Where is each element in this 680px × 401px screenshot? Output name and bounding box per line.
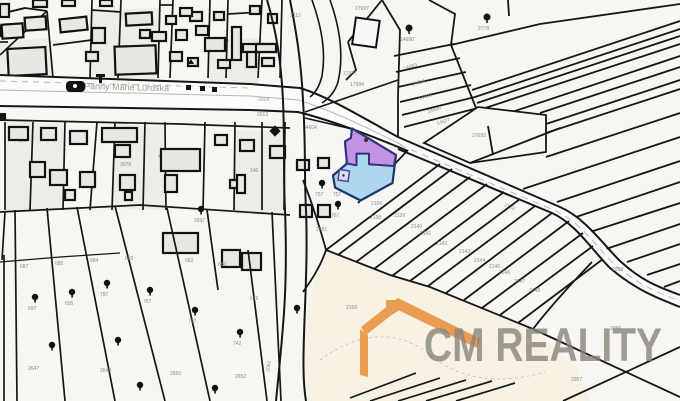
svg-text:767: 767 — [143, 299, 152, 305]
svg-text:2913: 2913 — [257, 112, 268, 118]
svg-text:17984: 17984 — [350, 82, 364, 88]
svg-text:2014: 2014 — [258, 97, 269, 103]
svg-text:742: 742 — [233, 341, 242, 347]
svg-text:2147: 2147 — [514, 279, 525, 285]
svg-text:2148: 2148 — [529, 288, 540, 294]
svg-text:2106: 2106 — [371, 201, 382, 207]
svg-text:687: 687 — [20, 264, 29, 270]
svg-text:2648: 2648 — [100, 368, 111, 374]
svg-text:684: 684 — [90, 258, 99, 264]
svg-text:2957: 2957 — [571, 377, 582, 383]
svg-text:680: 680 — [218, 262, 227, 268]
svg-text:2141: 2141 — [420, 231, 431, 237]
svg-text:2647: 2647 — [28, 366, 39, 372]
svg-text:2691: 2691 — [316, 227, 327, 233]
svg-text:2159: 2159 — [346, 305, 357, 311]
svg-text:787: 787 — [100, 292, 109, 298]
svg-text:2142: 2142 — [436, 241, 447, 247]
svg-text:3078: 3078 — [120, 162, 131, 168]
svg-text:757: 757 — [333, 192, 342, 198]
svg-text:140: 140 — [250, 168, 259, 174]
svg-text:17987: 17987 — [343, 71, 357, 77]
svg-text:14698: 14698 — [400, 37, 414, 43]
svg-text:2144: 2144 — [474, 258, 485, 264]
svg-text:2958: 2958 — [612, 267, 623, 273]
svg-text:697: 697 — [28, 306, 37, 312]
svg-text:2652: 2652 — [235, 374, 246, 380]
svg-text:2143: 2143 — [459, 249, 470, 255]
svg-text:683: 683 — [125, 256, 134, 262]
svg-text:767: 767 — [331, 213, 340, 219]
svg-text:2650: 2650 — [170, 371, 181, 377]
svg-text:2697: 2697 — [194, 218, 205, 224]
svg-text:17997: 17997 — [355, 6, 369, 12]
svg-text:685: 685 — [55, 261, 64, 267]
svg-text:37693: 37693 — [472, 133, 486, 139]
svg-text:695: 695 — [65, 301, 74, 307]
svg-text:2140: 2140 — [411, 224, 422, 230]
svg-text:CM REALITY: CM REALITY — [424, 318, 662, 371]
svg-text:2139: 2139 — [394, 213, 405, 219]
svg-text:2146: 2146 — [499, 270, 510, 276]
svg-text:679: 679 — [250, 296, 259, 302]
svg-text:757: 757 — [315, 192, 324, 198]
svg-text:2138: 2138 — [370, 215, 381, 221]
svg-text:682: 682 — [185, 258, 194, 264]
svg-text:2112: 2112 — [290, 13, 301, 19]
svg-text:797: 797 — [188, 319, 197, 325]
svg-text:2778: 2778 — [478, 26, 489, 32]
